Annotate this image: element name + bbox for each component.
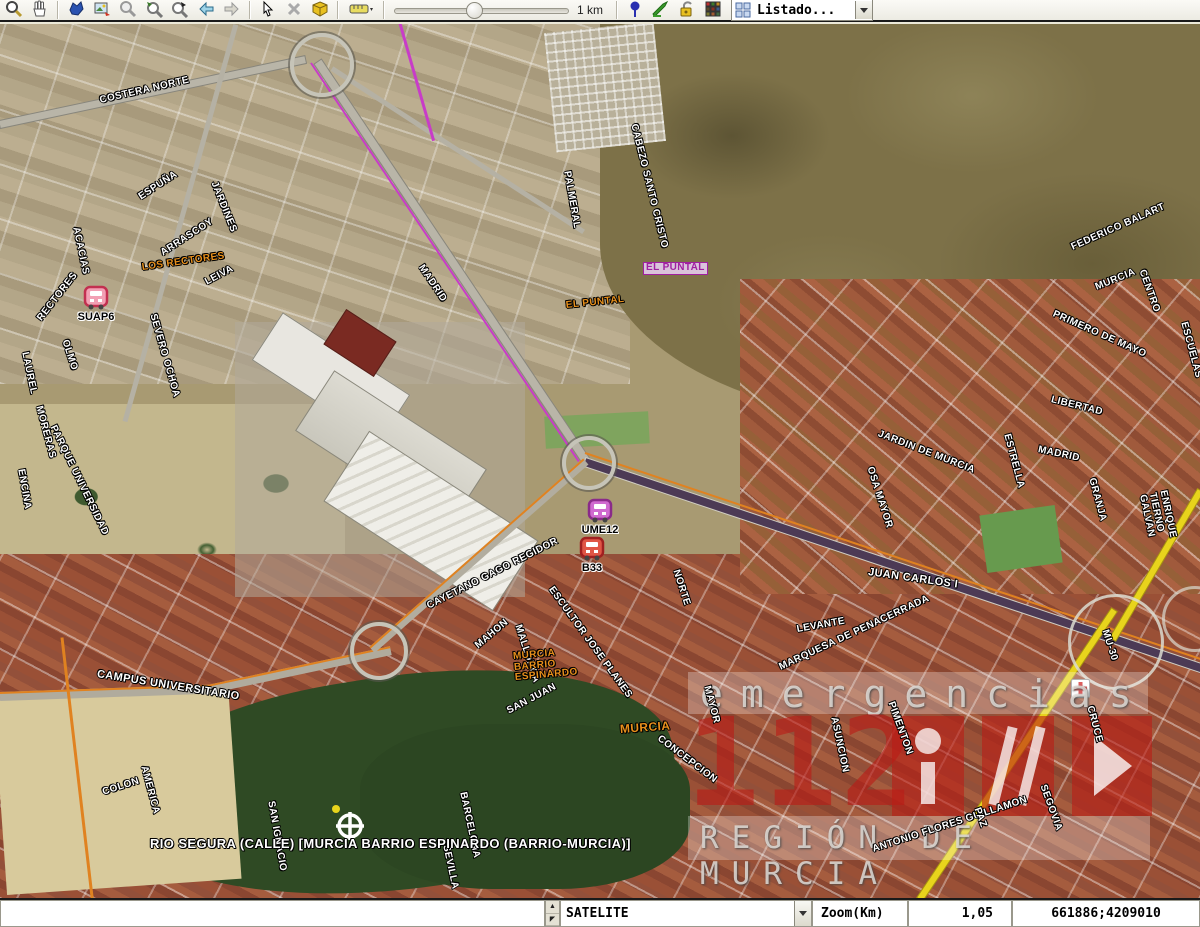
listado-dropdown-button[interactable] [855,1,872,19]
vehicle-icon [586,498,614,524]
lock-button[interactable] [675,0,699,20]
zoom-previous-icon [119,0,137,21]
chevron-down-icon [799,911,807,916]
toolbar: 1 km Listado... [0,0,1200,22]
pushpin-button[interactable] [623,0,647,20]
snapshot-icon [93,0,111,21]
terrain-right-urban [740,279,1200,594]
layer-select[interactable]: SATELITE [560,900,812,927]
zoom-previous-button[interactable] [116,0,140,20]
status-spinner[interactable]: ▲◤ [545,900,560,927]
toolbar-separator [616,1,618,19]
toolbar-separator [337,1,339,19]
vehicle-marker-SUAP6[interactable]: SUAP6 [82,285,110,323]
measure-button[interactable] [344,0,378,20]
map-label: RIO SEGURA (CALLE) [MURCIA BARRIO ESPINA… [150,837,631,851]
coordinates-value: 661886;4209010 [1051,906,1161,921]
scale-slider[interactable] [394,0,569,20]
snapshot-button[interactable] [90,0,114,20]
chevron-down-icon [860,8,868,13]
marker-label: B33 [582,562,602,574]
zoom-window-icon [145,0,163,21]
forward-arrow-icon [223,0,241,21]
legend-button[interactable] [701,0,725,20]
roundabout [1068,594,1164,690]
measure-ruler-icon [349,1,373,20]
spinner-up-icon[interactable]: ▲ [546,901,559,914]
vehicle-marker-B33[interactable]: B33 [578,536,606,574]
lock-icon [678,0,696,21]
pan-hand-icon [31,0,49,21]
layer-dropdown-button[interactable] [794,901,811,926]
spinner-down-icon[interactable]: ◤ [546,914,559,927]
draw-pen-icon [651,0,671,21]
pointer-button[interactable] [256,0,280,20]
zoom-button[interactable] [2,0,26,20]
pointer-icon [259,0,277,21]
pan-button[interactable] [28,0,52,20]
zoom-icon [5,0,23,21]
toolbar-separator [57,1,59,19]
layer-select-value: SATELITE [566,906,629,921]
zoom-label: Zoom(Km) [821,906,884,921]
vehicle-icon [578,536,606,562]
back-arrow-icon [197,0,215,21]
listado-grid-icon [732,2,751,18]
zoom-label-box: Zoom(Km) [812,900,908,927]
scale-label: 1 km [577,3,603,17]
status-text-input[interactable] [0,900,545,927]
vehicle-icon [82,285,110,311]
marker-label: SUAP6 [78,311,115,323]
map-label: EL PUNTAL [643,262,708,275]
zoom-value: 1,05 [962,906,993,921]
back-button[interactable] [194,0,218,20]
status-bar: ▲◤ SATELITE Zoom(Km) 1,05 661886;4209010 [0,898,1200,927]
app-window: { "toolbar": { "icons": ["zoom","pan","o… [0,0,1200,927]
toolbar-separator [249,1,251,19]
scale-slider-handle[interactable] [466,2,483,19]
terrain-cemetery [544,24,666,152]
zoom-select-icon [171,0,189,21]
terrain-green-field [979,505,1062,573]
map-label: MURCIA BARRIO ESPINARDO [513,647,579,684]
coordinates-box: 661886;4209010 [1012,900,1200,927]
toolbar-separator [383,1,385,19]
draw-button[interactable] [649,0,673,20]
pushpin-icon [627,0,643,21]
listado-value: Listado... [751,3,855,18]
vehicle-marker-UME12[interactable]: UME12 [586,498,614,536]
marker-label: UME12 [582,524,619,536]
clear-selection-button[interactable] [282,0,306,20]
legend-grid-icon [704,0,722,21]
cube-3d-icon [311,0,329,21]
terrain-river-2 [360,724,690,889]
overview-button[interactable] [64,0,88,20]
forward-button[interactable] [220,0,244,20]
map-canvas[interactable]: emergencias 112 REGIÓN DE MURCIA COSTERA… [0,24,1200,898]
view-3d-button[interactable] [308,0,332,20]
zoom-window-button[interactable] [142,0,166,20]
red-cross-icon [1071,679,1090,698]
clear-selection-icon [285,0,303,21]
roundabout [562,436,616,490]
listado-combobox[interactable]: Listado... [731,0,873,21]
roundabout [290,33,354,97]
roundabout [350,622,408,680]
zoom-value-box: 1,05 [908,900,1012,927]
overview-map-icon [67,0,85,21]
zoom-select-button[interactable] [168,0,192,20]
